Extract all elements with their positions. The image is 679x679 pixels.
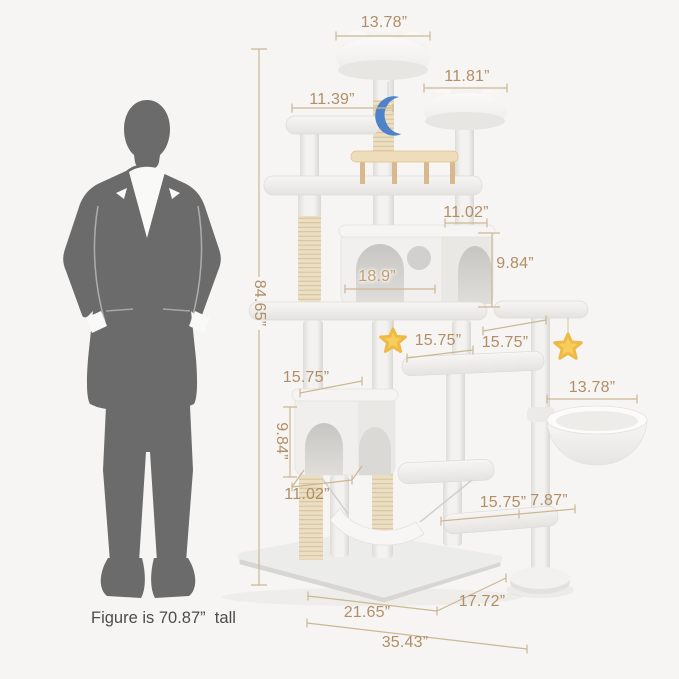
dim-label-lower-condo-height: 9.84” <box>273 422 289 459</box>
dim-label-upper-condo-depth: 18.9” <box>358 269 395 285</box>
dim-label-right-cloud-width: 11.81” <box>444 69 489 85</box>
dim-label-top-cloud-width: 13.78” <box>361 15 408 31</box>
dim-label-right-platform-width: 15.75” <box>482 335 529 351</box>
product-dimension-image: 13.78” 11.81” 11.39” 11.02” 9.84” 18.9” … <box>0 0 679 679</box>
condo-base-platform <box>249 302 487 320</box>
dim-label-total-width: 35.43” <box>382 635 429 651</box>
human-silhouette <box>63 100 221 598</box>
fence-leg-2 <box>392 160 397 184</box>
dim-label-total-height: 84.65” <box>251 280 267 327</box>
rc-post-low <box>446 371 465 467</box>
dim-label-bottom-step-width: 7.87” <box>530 493 567 509</box>
figure-height-caption: Figure is 70.87” tall <box>91 609 236 629</box>
star-toy-right <box>555 334 582 358</box>
lower-mid-platform <box>398 459 495 484</box>
dim-label-lower-condo-bottom-width: 11.02” <box>284 487 329 503</box>
cloud-underside <box>338 60 428 80</box>
cloud-underside <box>425 112 505 130</box>
silhouette-head <box>124 100 170 170</box>
basket-inner <box>556 411 638 431</box>
mid-platform <box>402 351 545 376</box>
silhouette-trousers <box>103 364 193 562</box>
dim-label-base-side-depth: 17.72” <box>459 594 506 610</box>
upper-condo-porthole <box>407 246 431 270</box>
fence-leg-4 <box>450 160 455 184</box>
dim-label-left-perch-width: 11.39” <box>309 92 354 108</box>
upper-condo-roof <box>339 225 495 237</box>
silhouette-shoe-right <box>151 558 195 598</box>
dim-label-upper-condo-top-width: 11.02” <box>443 205 488 221</box>
lower-condo <box>292 389 398 475</box>
right-cloud-perch <box>423 78 507 130</box>
fence-leg-3 <box>424 160 429 184</box>
dim-label-base-front-width: 21.65” <box>344 605 391 621</box>
dim-label-bottom-platform-width: 15.75” <box>480 495 527 511</box>
dim-label-basket-width: 13.78” <box>569 380 616 396</box>
fence-leg-1 <box>360 160 365 184</box>
right-foot-top <box>510 567 570 589</box>
left-perch <box>286 116 380 134</box>
left-sisal-post-cap <box>298 194 321 216</box>
wide-shelf <box>264 176 482 195</box>
lower-condo-arch-left <box>305 423 343 475</box>
fence-rail <box>351 151 458 162</box>
silhouette-shoe-left <box>101 558 145 598</box>
lower-condo-roof <box>292 389 398 401</box>
lower-condo-arch-right <box>359 427 391 475</box>
dim-label-mid-platform-width: 15.75” <box>415 333 462 349</box>
right-top-platform <box>494 301 588 318</box>
upper-condo-arch-right <box>458 246 492 304</box>
dim-label-upper-condo-height: 9.84” <box>496 256 533 272</box>
dim-label-lower-condo-top-width: 15.75” <box>283 370 330 386</box>
